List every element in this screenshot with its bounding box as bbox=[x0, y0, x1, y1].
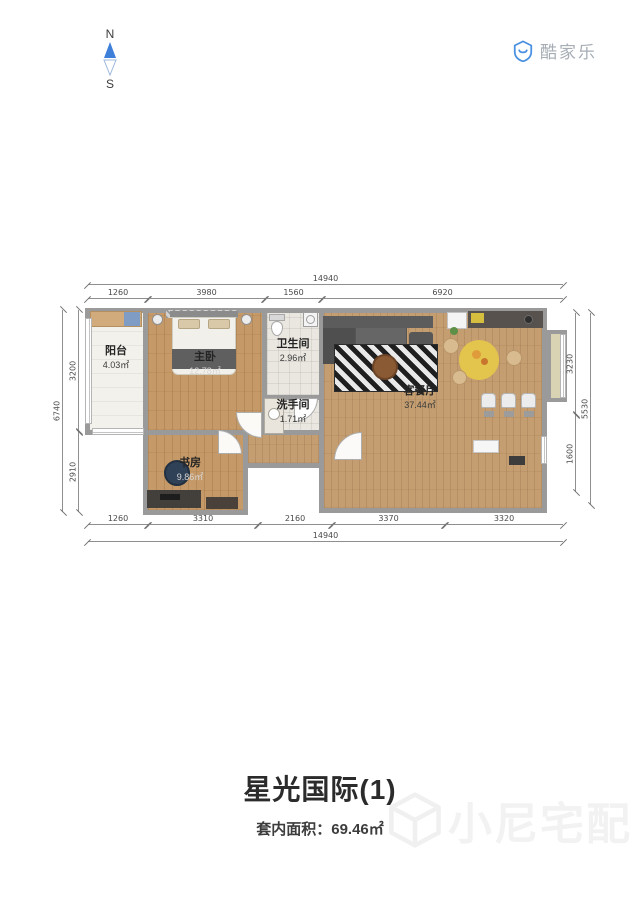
living-right-window bbox=[541, 436, 547, 464]
compass: N S bbox=[96, 28, 124, 90]
compass-south-label: S bbox=[96, 78, 124, 90]
desk-chair bbox=[481, 393, 496, 408]
kujiale-logo: 酷家乐 bbox=[512, 38, 597, 63]
study-cabinet bbox=[206, 497, 238, 509]
dim-right-seg: 1600 bbox=[575, 415, 576, 492]
fridge bbox=[447, 312, 467, 329]
dim-bottom-seg: 2160 bbox=[258, 524, 332, 525]
dim-left-seg: 2910 bbox=[78, 432, 79, 512]
label-balcony: 阳台 4.03㎡ bbox=[85, 345, 147, 371]
balcony-window bbox=[85, 318, 92, 424]
watermark-cube-icon bbox=[386, 791, 444, 849]
laptop bbox=[504, 411, 514, 417]
label-study: 书房 9.86㎡ bbox=[148, 457, 232, 483]
label-living-dining: 客餐厅 37.44㎡ bbox=[375, 385, 465, 411]
nightstand-lamp bbox=[241, 314, 252, 325]
watermark-text: 小尼宅配 bbox=[448, 788, 632, 852]
kujiale-shield-icon bbox=[512, 40, 534, 62]
compass-north-label: N bbox=[96, 28, 124, 40]
balcony-bottom-window bbox=[92, 428, 144, 435]
media-console bbox=[509, 456, 525, 465]
total-area-label: 套内面积： bbox=[256, 821, 331, 838]
dim-top-seg: 3980 bbox=[148, 298, 265, 299]
dim-left-total: 6740 bbox=[62, 310, 63, 512]
room-balcony bbox=[85, 308, 148, 435]
pouf-seat bbox=[506, 350, 522, 366]
dim-bottom-seg: 3370 bbox=[332, 524, 445, 525]
side-table bbox=[473, 440, 499, 453]
pouf-seat bbox=[452, 370, 467, 385]
sofa-back bbox=[323, 316, 433, 328]
dim-right-seg: 3230 bbox=[575, 313, 576, 415]
dining-plate bbox=[481, 358, 488, 365]
kitchen-item-yellow bbox=[471, 313, 484, 323]
dim-bottom-seg: 1260 bbox=[88, 524, 148, 525]
dim-left-seg: 3200 bbox=[78, 310, 79, 432]
label-master-bedroom: 主卧 12.78㎡ bbox=[163, 351, 247, 377]
bay-right-window bbox=[560, 334, 566, 398]
dim-right-total: 5530 bbox=[590, 313, 591, 505]
monitor bbox=[160, 494, 180, 500]
nightstand-lamp bbox=[152, 314, 163, 325]
dining-plate bbox=[472, 350, 481, 359]
desk-chair bbox=[501, 393, 516, 408]
washing-machine-door bbox=[306, 315, 315, 324]
stove-burner bbox=[524, 315, 533, 324]
balcony-cushion bbox=[124, 312, 140, 326]
floorplan-page: N S 酷家乐 bbox=[0, 0, 640, 905]
plant bbox=[450, 327, 458, 335]
bed-pillow bbox=[178, 319, 200, 329]
dim-top-seg: 1260 bbox=[88, 298, 148, 299]
bed-pillow bbox=[208, 319, 230, 329]
total-area-value: 69.46㎡ bbox=[331, 821, 384, 838]
desk-chair bbox=[521, 393, 536, 408]
laptop bbox=[484, 411, 494, 417]
dim-top-seg: 6920 bbox=[322, 298, 563, 299]
laptop bbox=[524, 411, 534, 417]
dim-top-total: 14940 bbox=[88, 284, 563, 285]
compass-needle-icon bbox=[102, 42, 118, 76]
label-washroom: 洗手间 1.71㎡ bbox=[264, 399, 322, 425]
watermark: 小尼宅配 bbox=[386, 788, 632, 852]
label-bathroom: 卫生间 2.96㎡ bbox=[262, 338, 324, 364]
pouf-seat bbox=[443, 338, 459, 354]
kujiale-logo-text: 酷家乐 bbox=[540, 38, 597, 63]
dim-top-seg: 1560 bbox=[265, 298, 322, 299]
dim-bottom-seg: 3310 bbox=[148, 524, 258, 525]
dim-bottom-total: 14940 bbox=[88, 541, 563, 542]
coffee-table bbox=[372, 354, 398, 380]
toilet-tank bbox=[269, 314, 285, 321]
dim-bottom-seg: 3320 bbox=[445, 524, 563, 525]
